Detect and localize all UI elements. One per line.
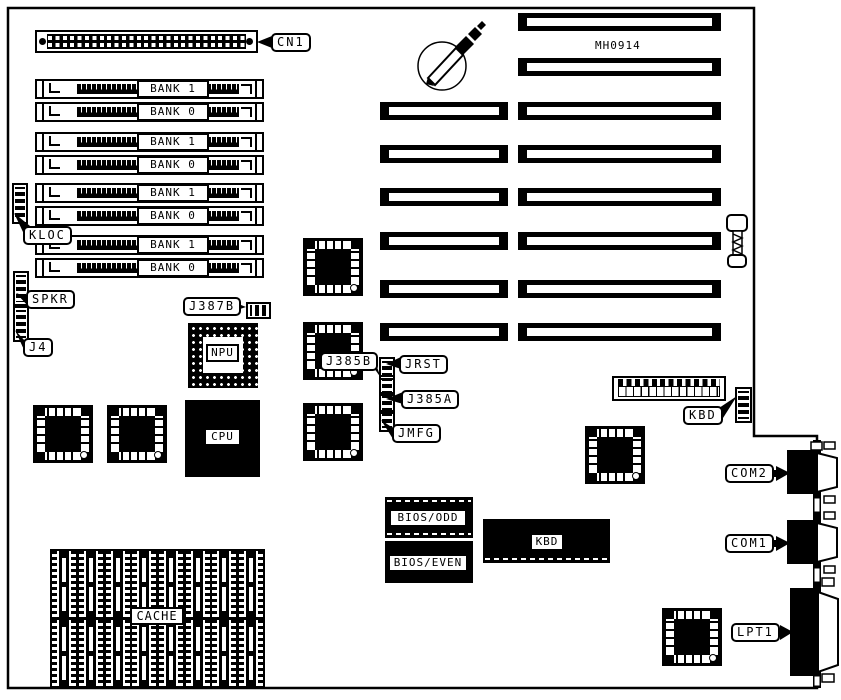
jrst-callout: JRST	[399, 355, 448, 374]
j385a-callout: J385A	[401, 390, 459, 409]
qfp-chip	[585, 426, 645, 484]
bank-label: BANK 1	[137, 133, 209, 151]
cpu-label: CPU	[204, 428, 241, 446]
bios-odd-label: BIOS/ODD	[389, 509, 467, 527]
com2-callout: COM2	[725, 464, 774, 483]
bank-label: BANK 1	[137, 80, 209, 98]
spkr-callout: SPKR	[26, 290, 75, 309]
bank-label: BANK 0	[137, 156, 209, 174]
bios-even-label: BIOS/EVEN	[388, 554, 468, 572]
com1-callout: COM1	[725, 534, 774, 553]
j4-callout: J4	[23, 338, 53, 357]
j387b-callout: J387B	[183, 297, 241, 316]
qfp-chip	[662, 608, 722, 666]
npu-label: NPU	[206, 344, 239, 362]
qfp-chip	[107, 405, 167, 463]
qfp-chip	[303, 322, 363, 380]
motherboard-diagram: BANK 1 BANK 0 BANK 1 BANK 0 BANK 1 BANK …	[0, 0, 841, 700]
cn1-callout: CN1	[271, 33, 311, 52]
bank-label: BANK 1	[137, 184, 209, 202]
qfp-chip	[33, 405, 93, 463]
bank-label: BANK 1	[137, 236, 209, 254]
kbd-chip-label: KBD	[530, 533, 564, 551]
bank-label: BANK 0	[137, 103, 209, 121]
com2-port	[787, 450, 837, 494]
lpt1-port	[790, 588, 838, 676]
screw-icon	[727, 215, 747, 267]
bank-label: BANK 0	[137, 207, 209, 225]
battery-icon	[418, 21, 486, 90]
j385b-callout: J385B	[320, 352, 378, 371]
kbd-callout: KBD	[683, 406, 723, 425]
callout-tails	[14, 36, 793, 640]
lpt1-callout: LPT1	[731, 623, 780, 642]
bank-label: BANK 0	[137, 259, 209, 277]
qfp-chip	[303, 238, 363, 296]
qfp-chip	[303, 403, 363, 461]
com1-port	[787, 520, 837, 564]
cache-label: CACHE	[130, 607, 184, 625]
kloc-callout: KLOC	[23, 226, 72, 245]
jmfg-callout: JMFG	[392, 424, 441, 443]
diagram-graphics-layer	[0, 0, 841, 700]
board-outline	[8, 8, 817, 688]
